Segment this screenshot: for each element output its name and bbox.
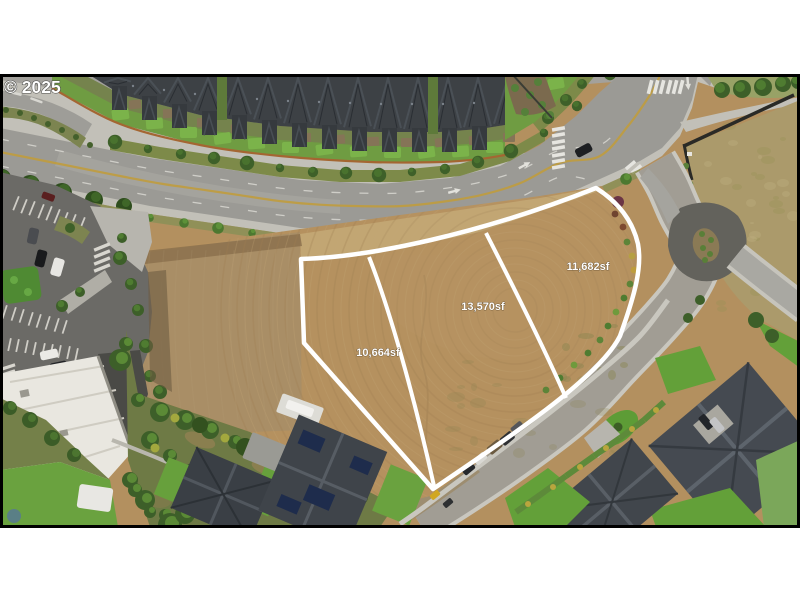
svg-text:11,682sf: 11,682sf [567,261,610,273]
svg-text:13,570sf: 13,570sf [461,301,505,313]
svg-text:© 2025: © 2025 [4,77,61,97]
svg-text:10,664sf: 10,664sf [356,347,400,359]
